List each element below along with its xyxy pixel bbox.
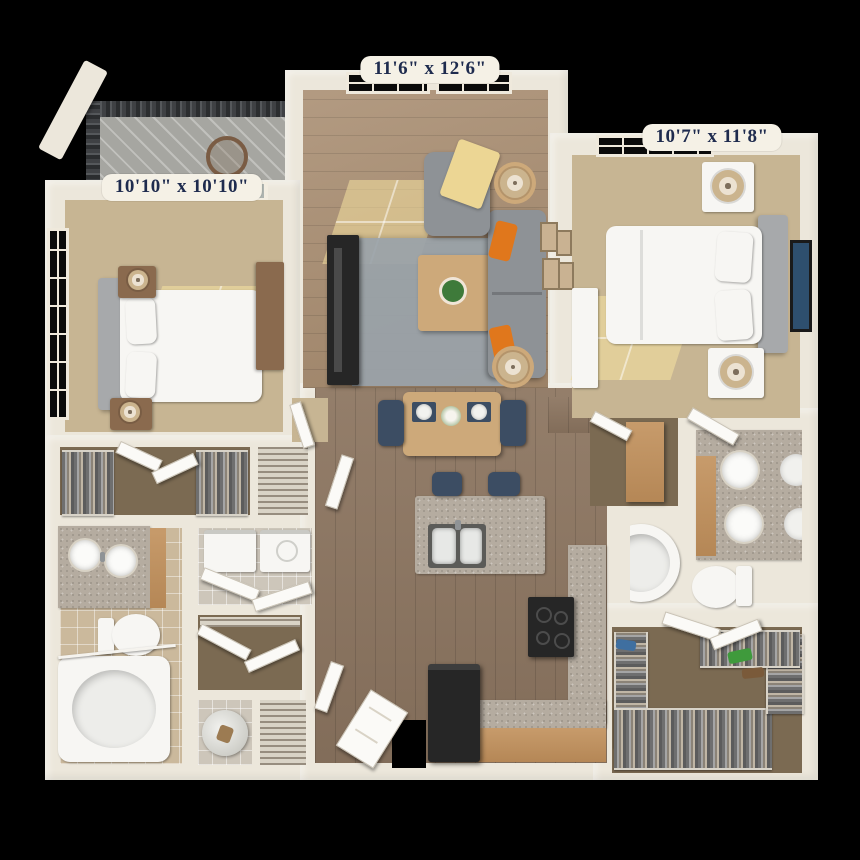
refrigerator [428,664,480,762]
bathroom-right-vanity-cabinet [696,456,716,556]
bathroom-right-mirror-sink-1 [780,454,802,486]
bathroom-left-vanity-cabinet [150,528,166,608]
kitchen-counter-south [475,700,606,728]
bathtub-left-basin [72,670,156,748]
bedroom-right-desk [572,288,598,388]
lamp-nightstand-right-top [712,170,744,202]
closet-left-clothes-west [62,450,114,516]
room-label-bedroom-left-text: 10'10" x 10'10" [115,176,249,197]
washer [204,530,256,572]
stove [528,597,574,657]
balcony-railing-left [86,101,100,189]
bathroom-right-mirror-sink-2 [784,508,802,540]
dryer-door-circle [276,540,298,562]
bed-left-headboard [98,278,122,410]
bathroom-left-vanity [58,526,150,608]
tv-screen [334,248,342,372]
toilet-right-tank [736,566,752,606]
bathroom-left-faucets [100,552,105,562]
bed-right-pillow-bottom [714,289,753,341]
room-label-living: 11'6" x 12'6" [360,56,499,83]
bathroom-right-clip [630,428,802,646]
lamp-nightstand-right-bottom [720,356,752,388]
stove-burner-1 [536,607,552,623]
balcony-chair [206,136,248,178]
closet-left-clothes-east [196,450,248,516]
bedroom-left-window [47,228,69,420]
closet-right-clothes-south [614,708,772,770]
floor-plan-canvas: 11'6" x 12'6" 10'7" x 11'8" 10'10" x 10'… [0,0,860,860]
bathroom-left-sink-1 [70,540,100,570]
lamp-nightstand-left-bottom [120,402,140,422]
dining-chair-right [500,400,526,446]
bathroom-right-sink-1 [722,452,758,488]
kitchen-sink-basin-2 [460,528,482,564]
stove-burner-4 [554,633,570,649]
flower-centerpiece [441,406,461,426]
bathroom-right-sink-2 [726,506,762,542]
tv-console [327,235,359,385]
balcony-railing-top [86,101,292,117]
lamp-living-top [500,168,530,198]
bed-right-duvet-fold [640,230,643,340]
kitchen-cabinets-south [475,728,606,762]
room-label-bedroom-left: 10'10" x 10'10" [102,174,262,201]
coat-closet-shelf [200,617,300,627]
dining-chair-left [378,400,404,446]
lamp-living-bottom [498,352,528,382]
bed-left-pillow-bottom [125,351,157,399]
kitchen-island [415,496,545,574]
room-label-living-text: 11'6" x 12'6" [373,58,486,79]
bed-right-pillow-top [714,231,753,283]
bedroom-left-dresser [256,262,284,370]
gallery-frame-2 [556,230,572,256]
kitchen-sink-basin-1 [432,528,456,564]
stove-burner-3 [536,631,550,645]
wall-art-blue [790,240,812,332]
dining-table [403,392,501,456]
bed-right-headboard [758,215,788,353]
bar-stool-1 [432,472,462,496]
hvac-closet-louvers [260,700,306,765]
toilet-right-bowl [692,566,740,608]
linen-closet-shelves [258,447,308,515]
room-label-bedroom-right-text: 10'7" x 11'8" [655,126,768,147]
bar-stool-2 [488,472,520,496]
sofa-seat-divider [492,292,542,295]
plate-2 [471,404,487,420]
lamp-nightstand-left-top [128,270,148,290]
kitchen-faucet [455,520,461,530]
room-label-bedroom-right: 10'7" x 11'8" [642,124,781,151]
gallery-frame-4 [558,262,574,290]
stove-burner-2 [554,611,568,625]
coffee-table-plant [442,280,464,302]
bathroom-left-sink-2 [106,546,136,576]
plate-1 [416,404,432,420]
bed-left-pillow-top [125,297,157,345]
